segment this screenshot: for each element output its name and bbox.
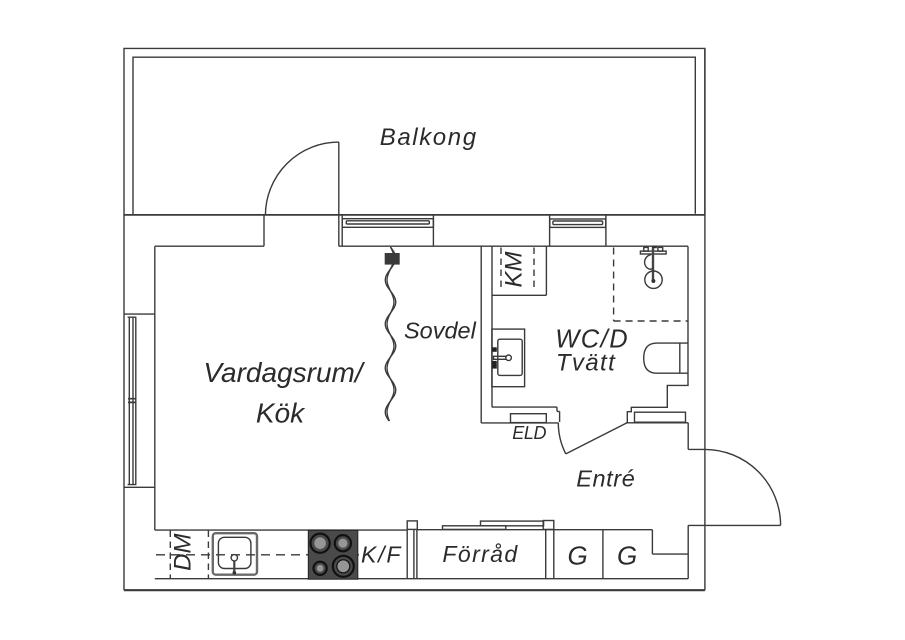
svg-text:G: G [617,540,637,570]
svg-text:Vardagsrum/: Vardagsrum/ [203,357,365,388]
svg-text:Förråd: Förråd [442,541,518,567]
svg-text:K/F: K/F [361,542,402,568]
svg-text:Tvätt: Tvätt [556,350,616,377]
svg-text:ELD: ELD [512,423,546,443]
svg-text:Kök: Kök [256,398,306,429]
svg-text:Sovdel: Sovdel [404,318,477,344]
svg-text:DM: DM [170,534,197,571]
svg-text:Balkong: Balkong [380,124,478,151]
svg-text:G: G [567,540,587,570]
svg-text:Entré: Entré [576,465,635,491]
svg-text:KM: KM [501,251,528,287]
